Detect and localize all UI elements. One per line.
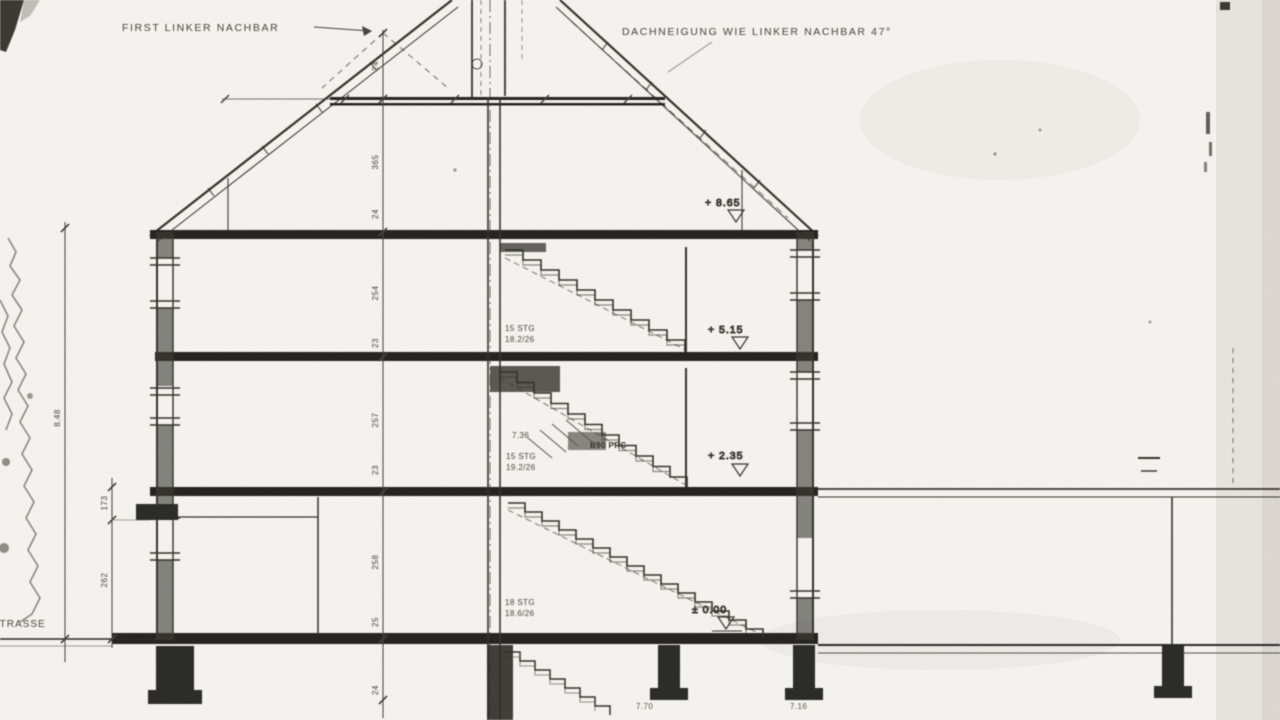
paper-grain (0, 0, 1280, 720)
scanned-drawing-page: 24 365 24 254 23 257 23 258 25 24 8.48 1… (0, 0, 1280, 720)
section-drawing: 24 365 24 254 23 257 23 258 25 24 8.48 1… (0, 0, 1280, 720)
